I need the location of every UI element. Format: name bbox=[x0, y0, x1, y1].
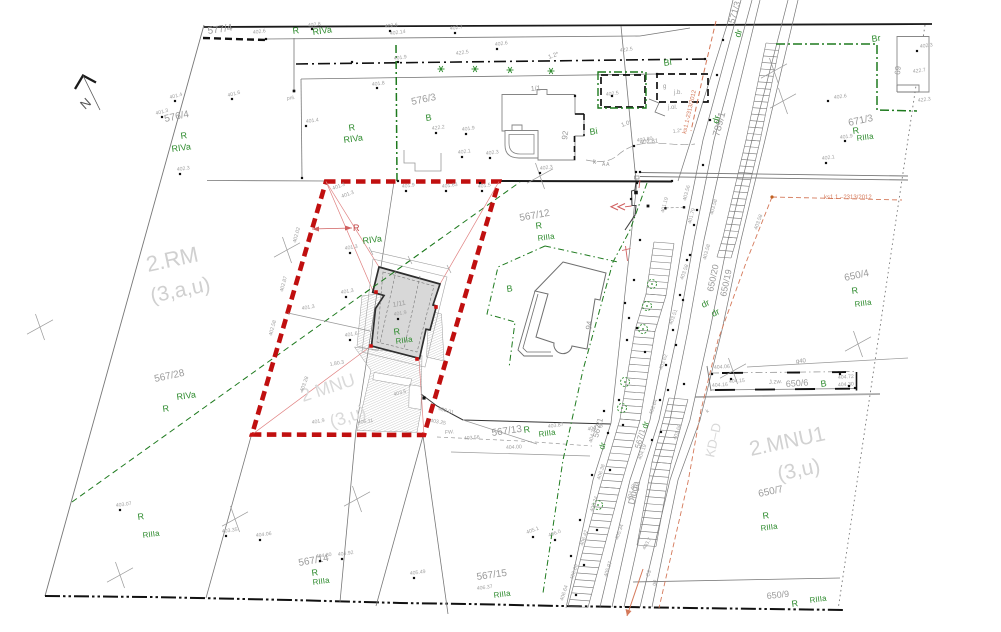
svg-text:404.16: 404.16 bbox=[712, 382, 728, 389]
svg-text:j.b.: j.b. bbox=[673, 90, 682, 96]
svg-text:g40: g40 bbox=[796, 358, 807, 365]
svg-text:J.zw.: J.zw. bbox=[769, 379, 783, 386]
svg-text:404.30: 404.30 bbox=[838, 381, 854, 388]
svg-text:R: R bbox=[353, 223, 360, 233]
svg-text:FW.: FW. bbox=[445, 429, 455, 436]
svg-text:1/1: 1/1 bbox=[531, 85, 541, 93]
svg-text:94: 94 bbox=[584, 320, 594, 331]
svg-text:g: g bbox=[663, 84, 666, 90]
svg-text:A A: A A bbox=[602, 162, 610, 168]
svg-text:ks1.1: ks1.1 bbox=[824, 195, 839, 201]
svg-text:650/6: 650/6 bbox=[785, 377, 808, 389]
svg-text:j.ol.: j.ol. bbox=[667, 105, 678, 111]
svg-text:Bi: Bi bbox=[589, 126, 598, 137]
svg-text:404.06: 404.06 bbox=[714, 364, 730, 371]
svg-text:1.2*: 1.2* bbox=[672, 128, 682, 135]
svg-text:–2313/2012: –2313/2012 bbox=[840, 195, 872, 201]
svg-text:Br: Br bbox=[871, 33, 881, 44]
svg-text:pnł.: pnł. bbox=[286, 95, 295, 102]
svg-text:Bi: Bi bbox=[663, 57, 672, 68]
svg-text:404.00: 404.00 bbox=[506, 444, 522, 451]
svg-text:69: 69 bbox=[893, 65, 903, 75]
svg-text:92: 92 bbox=[560, 130, 570, 141]
